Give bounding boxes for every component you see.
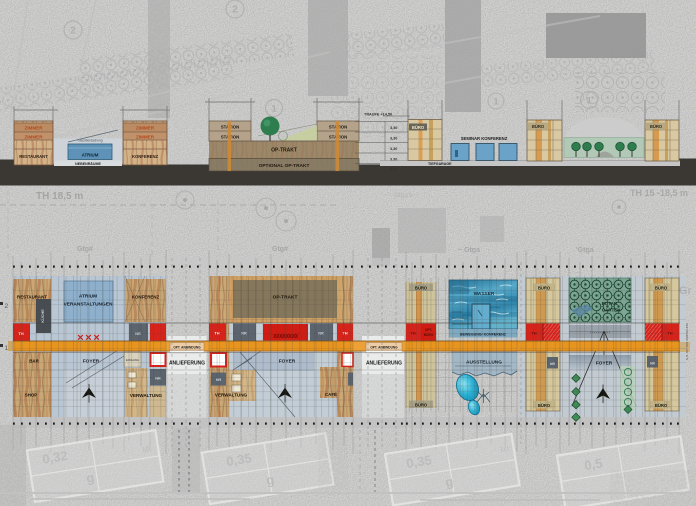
- svg-text:BÜRO: BÜRO: [412, 125, 425, 130]
- svg-text:1: 1: [271, 104, 277, 115]
- svg-text:BÜRO: BÜRO: [532, 124, 545, 129]
- svg-text:0,5: 0,5: [583, 455, 603, 473]
- svg-text:KONFERENZ: KONFERENZ: [132, 154, 158, 159]
- svg-text:1: 1: [586, 96, 592, 107]
- svg-text:2: 2: [70, 26, 76, 37]
- svg-text:Gtg#: Gtg#: [77, 246, 93, 253]
- svg-text:2: 2: [5, 303, 9, 310]
- svg-text:MI: MI: [142, 444, 152, 454]
- svg-text:3,30: 3,30: [390, 137, 397, 141]
- svg-text:TIEFGARAGE: TIEFGARAGE: [428, 162, 452, 166]
- svg-text:Glasüberdachung: Glasüberdachung: [77, 139, 102, 143]
- svg-text:TRAUFE +14,50: TRAUFE +14,50: [364, 113, 392, 117]
- svg-text:TH 18,5 m: TH 18,5 m: [36, 191, 83, 202]
- svg-text:SEMINAR KONFERENZ: SEMINAR KONFERENZ: [461, 136, 508, 141]
- svg-text:MI: MI: [500, 444, 510, 454]
- svg-text:~ Gtga: ~ Gtga: [458, 247, 480, 254]
- svg-text:'Gtga: 'Gtga: [576, 247, 594, 254]
- svg-text:1: 1: [5, 345, 9, 352]
- svg-text:NEBENRÄUME: NEBENRÄUME: [75, 162, 101, 166]
- svg-text:ZIMMER: ZIMMER: [24, 126, 43, 131]
- svg-text:OPTIONAL OP-TRAKT: OPTIONAL OP-TRAKT: [259, 163, 310, 169]
- svg-text:OPT. ANBINDUNG: OPT. ANBINDUNG: [173, 345, 201, 349]
- svg-text:ANLIEFERUNG: ANLIEFERUNG: [366, 361, 402, 367]
- svg-text:ZIMMER: ZIMMER: [24, 135, 43, 140]
- svg-text:3,30: 3,30: [390, 126, 397, 130]
- svg-text:Gtg#: Gtg#: [272, 246, 288, 253]
- svg-text:OPT. ANBINDUNG: OPT. ANBINDUNG: [370, 345, 398, 349]
- svg-text:TH 15 -18,5 m: TH 15 -18,5 m: [630, 188, 688, 198]
- svg-text:3,30: 3,30: [390, 147, 397, 151]
- svg-text:ATRIUM: ATRIUM: [82, 153, 99, 158]
- svg-text:1: 1: [493, 97, 498, 107]
- svg-text:OP-TRAKT: OP-TRAKT: [271, 148, 297, 154]
- svg-text:3,50: 3,50: [390, 167, 397, 171]
- svg-text:ZIMMER: ZIMMER: [136, 126, 155, 131]
- svg-text:ZIMMER: ZIMMER: [136, 135, 155, 140]
- svg-text:2: 2: [232, 5, 238, 16]
- svg-text:RESTAURANT: RESTAURANT: [19, 154, 48, 159]
- svg-text:~ 'Gtga b.: ~ 'Gtga b.: [388, 193, 414, 199]
- svg-text:BÜRO: BÜRO: [650, 124, 663, 129]
